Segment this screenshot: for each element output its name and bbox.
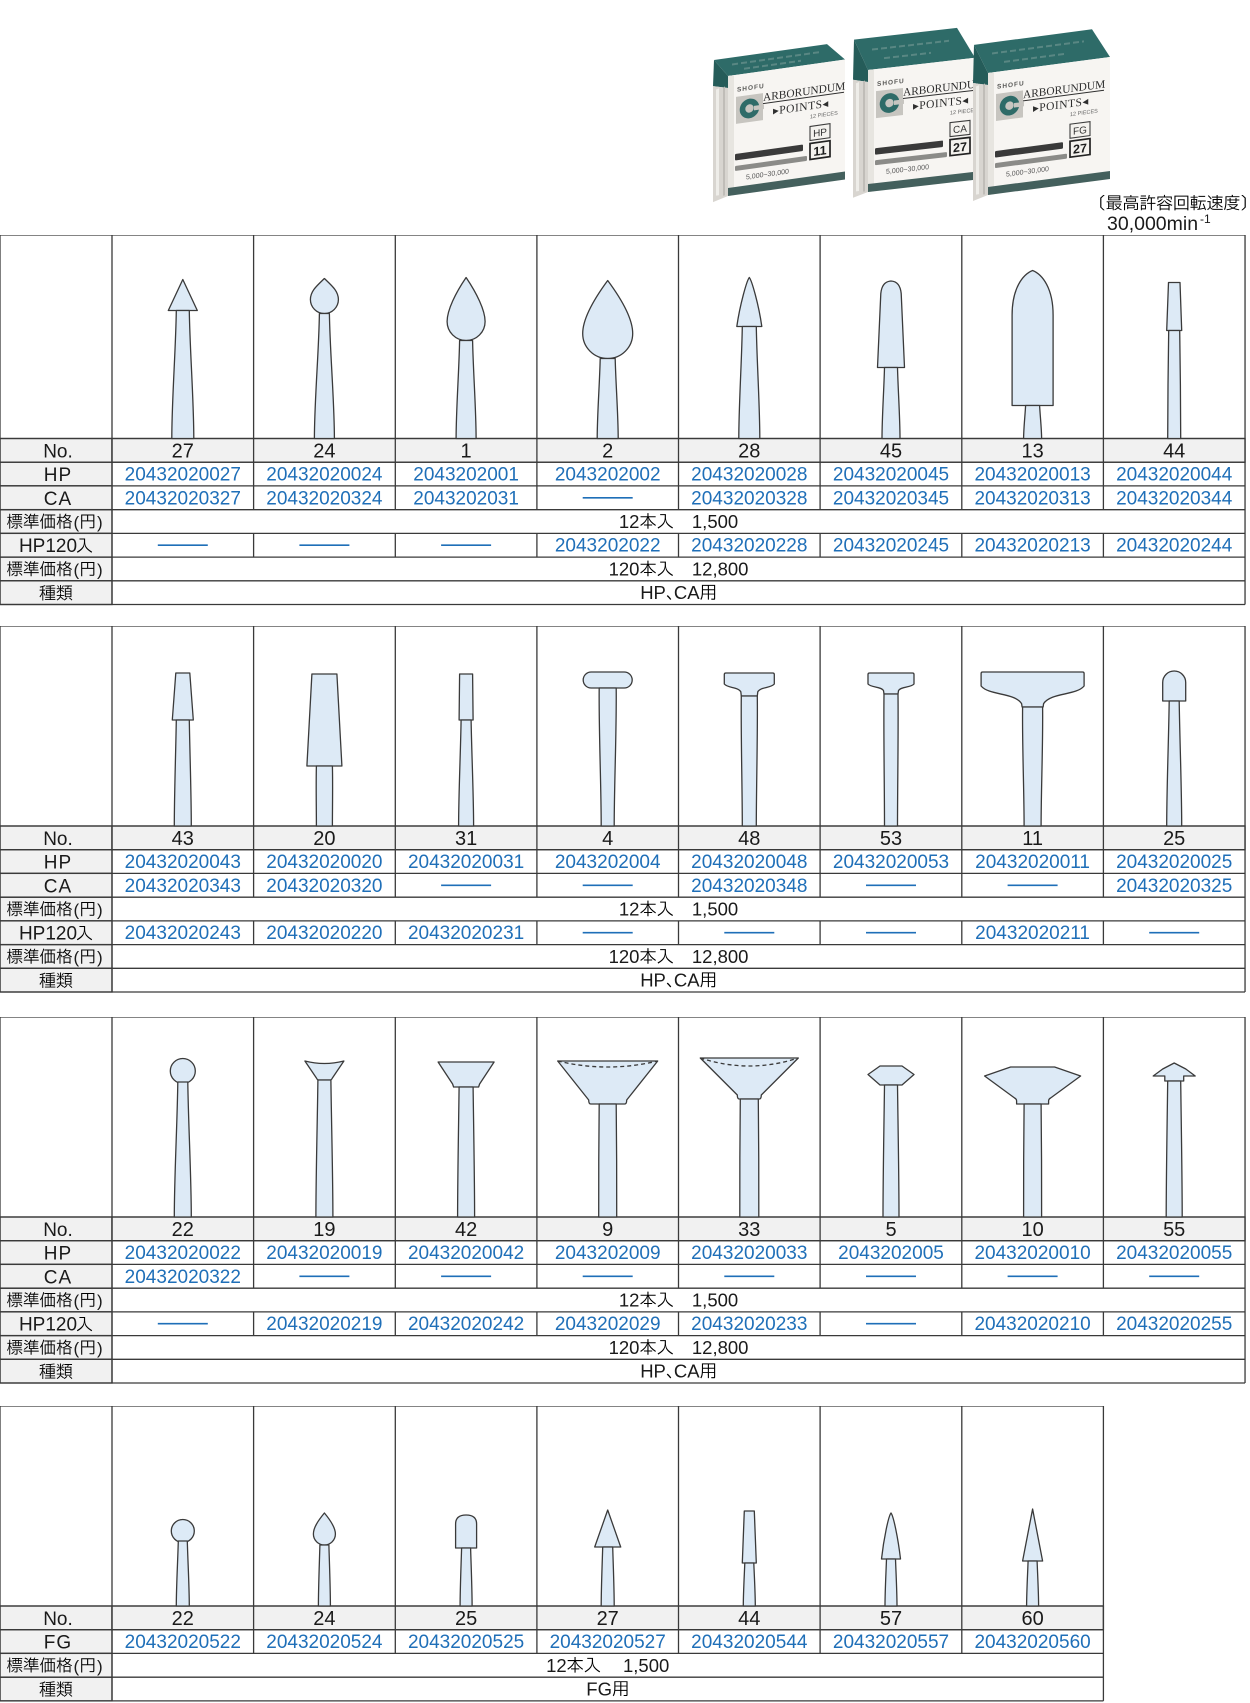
- svg-text:HP: HP: [813, 127, 827, 140]
- svg-text:HP: HP: [44, 1244, 72, 1265]
- svg-text:20432020213: 20432020213: [974, 535, 1090, 556]
- svg-text:20432020327: 20432020327: [125, 488, 241, 509]
- svg-text:20432020028: 20432020028: [691, 464, 807, 485]
- svg-text:20432020325: 20432020325: [1116, 876, 1232, 897]
- svg-text:20432020055: 20432020055: [1116, 1243, 1232, 1264]
- svg-text:20432020024: 20432020024: [266, 464, 383, 485]
- svg-text:57: 57: [880, 1608, 902, 1630]
- svg-text:20432020020: 20432020020: [266, 852, 382, 873]
- svg-text:No.: No.: [43, 1220, 73, 1241]
- svg-text:HP: HP: [640, 1361, 666, 1382]
- svg-text:20432020345: 20432020345: [833, 488, 949, 509]
- svg-text:1,500: 1,500: [623, 1655, 669, 1676]
- svg-text:CA: CA: [44, 1267, 72, 1288]
- svg-text:20432020010: 20432020010: [974, 1243, 1090, 1264]
- svg-text:20432020027: 20432020027: [125, 464, 241, 485]
- svg-text:20432020244: 20432020244: [1116, 535, 1233, 556]
- svg-text:20432020220: 20432020220: [266, 923, 382, 944]
- svg-text:1: 1: [461, 440, 472, 462]
- svg-text:20432020044: 20432020044: [1116, 464, 1233, 485]
- svg-text:HP: HP: [640, 582, 666, 603]
- svg-text:CA: CA: [44, 876, 72, 897]
- svg-text:(: (: [74, 1657, 80, 1676]
- svg-text:FG: FG: [44, 1633, 72, 1654]
- svg-text:1,500: 1,500: [692, 899, 738, 920]
- svg-text:20432020042: 20432020042: [408, 1243, 524, 1264]
- svg-text:45: 45: [880, 440, 902, 462]
- svg-text:13: 13: [1021, 440, 1043, 462]
- svg-text:2043202002: 2043202002: [555, 464, 661, 485]
- svg-text:27: 27: [1073, 141, 1087, 157]
- svg-text:12,800: 12,800: [692, 1337, 749, 1358]
- svg-text:12: 12: [619, 899, 640, 920]
- svg-text:24: 24: [313, 1608, 335, 1630]
- svg-text:44: 44: [738, 1608, 760, 1630]
- svg-text:1,500: 1,500: [692, 1290, 738, 1311]
- svg-text:CA: CA: [674, 1361, 700, 1382]
- svg-text:2043202005: 2043202005: [838, 1243, 944, 1264]
- svg-text:): ): [97, 901, 103, 920]
- svg-text:20432020320: 20432020320: [266, 876, 382, 897]
- svg-text:20432020344: 20432020344: [1116, 488, 1233, 509]
- svg-text:42: 42: [455, 1219, 477, 1241]
- svg-text:53: 53: [880, 828, 902, 850]
- svg-text:): ): [97, 1292, 103, 1311]
- svg-text:20432020255: 20432020255: [1116, 1314, 1232, 1335]
- svg-text:27: 27: [953, 140, 967, 156]
- svg-text:25: 25: [1163, 828, 1185, 850]
- svg-text:FG: FG: [1073, 125, 1087, 138]
- svg-text:20432020522: 20432020522: [125, 1632, 241, 1653]
- svg-text:1,500: 1,500: [692, 511, 738, 532]
- svg-text:CA: CA: [44, 488, 72, 509]
- svg-text:22: 22: [172, 1219, 194, 1241]
- svg-text:20432020233: 20432020233: [691, 1314, 807, 1335]
- svg-text:20432020348: 20432020348: [691, 876, 807, 897]
- svg-text:9: 9: [602, 1219, 613, 1241]
- svg-text:HP120: HP120: [19, 924, 77, 945]
- svg-text:48: 48: [738, 828, 760, 850]
- svg-text:): ): [97, 560, 103, 579]
- svg-text:No.: No.: [43, 829, 73, 850]
- svg-text:2043202029: 2043202029: [555, 1314, 661, 1335]
- svg-text:27: 27: [597, 1608, 619, 1630]
- svg-text:(: (: [74, 513, 80, 532]
- svg-text:12: 12: [619, 1290, 640, 1311]
- svg-text:CA: CA: [674, 582, 700, 603]
- svg-text:2043202001: 2043202001: [413, 464, 519, 485]
- svg-text:CA: CA: [674, 970, 700, 991]
- svg-text:20432020043: 20432020043: [125, 852, 241, 873]
- svg-text:120: 120: [609, 558, 640, 579]
- svg-text:HP120: HP120: [19, 1315, 77, 1336]
- svg-text:12: 12: [619, 511, 640, 532]
- svg-text:(: (: [74, 560, 80, 579]
- svg-text:120: 120: [609, 1337, 640, 1358]
- svg-text:2043202009: 2043202009: [555, 1243, 661, 1264]
- svg-text:2043202031: 2043202031: [413, 488, 519, 509]
- svg-text:CA: CA: [953, 124, 967, 137]
- svg-text:): ): [97, 1339, 103, 1358]
- svg-text:10: 10: [1021, 1219, 1043, 1241]
- svg-text:30,000min: 30,000min: [1107, 213, 1198, 235]
- svg-text:20: 20: [313, 828, 335, 850]
- svg-text:20432020343: 20432020343: [125, 876, 241, 897]
- svg-text:-1: -1: [1200, 212, 1211, 226]
- svg-text:20432020324: 20432020324: [266, 488, 383, 509]
- svg-text:20432020313: 20432020313: [974, 488, 1090, 509]
- svg-text:20432020527: 20432020527: [550, 1632, 666, 1653]
- svg-text:11: 11: [1022, 828, 1043, 850]
- svg-text:44: 44: [1163, 440, 1185, 462]
- svg-text:20432020025: 20432020025: [1116, 852, 1232, 873]
- svg-text:20432020048: 20432020048: [691, 852, 807, 873]
- svg-text:No.: No.: [43, 441, 73, 462]
- svg-text:(: (: [74, 1339, 80, 1358]
- svg-text:HP120: HP120: [19, 536, 77, 557]
- svg-text:No.: No.: [43, 1609, 73, 1630]
- svg-text:55: 55: [1163, 1219, 1185, 1241]
- svg-text:): ): [97, 948, 103, 967]
- svg-text:20432020231: 20432020231: [408, 923, 524, 944]
- svg-text:20432020033: 20432020033: [691, 1243, 807, 1264]
- svg-text:4: 4: [602, 828, 613, 850]
- svg-text:12: 12: [546, 1655, 567, 1676]
- svg-text:(: (: [74, 948, 80, 967]
- svg-text:FG: FG: [586, 1679, 612, 1700]
- svg-text:11: 11: [813, 143, 826, 159]
- svg-text:20432020544: 20432020544: [691, 1632, 808, 1653]
- svg-text:20432020525: 20432020525: [408, 1632, 524, 1653]
- svg-text:20432020219: 20432020219: [266, 1314, 382, 1335]
- svg-text:20432020228: 20432020228: [691, 535, 807, 556]
- svg-text:19: 19: [313, 1219, 335, 1241]
- svg-text:HP: HP: [640, 970, 666, 991]
- svg-text:120: 120: [609, 946, 640, 967]
- svg-text:(: (: [74, 1292, 80, 1311]
- svg-text:20432020013: 20432020013: [974, 464, 1090, 485]
- svg-text:20432020524: 20432020524: [266, 1632, 383, 1653]
- svg-text:20432020560: 20432020560: [974, 1632, 1090, 1653]
- svg-text:20432020243: 20432020243: [125, 923, 241, 944]
- svg-text:): ): [97, 1657, 103, 1676]
- svg-text:28: 28: [738, 440, 760, 462]
- svg-text:HP: HP: [44, 853, 72, 874]
- svg-text:12,800: 12,800: [692, 946, 749, 967]
- svg-text:20432020210: 20432020210: [974, 1314, 1090, 1335]
- svg-text:22: 22: [172, 1608, 194, 1630]
- svg-text:20432020011: 20432020011: [975, 852, 1090, 873]
- svg-text:(: (: [74, 901, 80, 920]
- svg-text:20432020019: 20432020019: [266, 1243, 382, 1264]
- svg-text:20432020031: 20432020031: [408, 852, 524, 873]
- svg-text:20432020322: 20432020322: [125, 1267, 241, 1288]
- svg-text:33: 33: [738, 1219, 760, 1241]
- svg-text:20432020053: 20432020053: [833, 852, 949, 873]
- svg-text:2043202022: 2043202022: [555, 535, 661, 556]
- svg-text:43: 43: [172, 828, 194, 850]
- svg-text:12,800: 12,800: [692, 558, 749, 579]
- svg-text:20432020328: 20432020328: [691, 488, 807, 509]
- svg-text:20432020242: 20432020242: [408, 1314, 524, 1335]
- svg-text:20432020045: 20432020045: [833, 464, 949, 485]
- svg-text:20432020245: 20432020245: [833, 535, 949, 556]
- svg-text:20432020022: 20432020022: [125, 1243, 241, 1264]
- svg-text:2043202004: 2043202004: [555, 852, 661, 873]
- svg-text:): ): [97, 513, 103, 532]
- svg-text:5: 5: [885, 1219, 896, 1241]
- svg-text:2: 2: [602, 440, 613, 462]
- svg-text:24: 24: [313, 440, 335, 462]
- svg-text:27: 27: [172, 440, 194, 462]
- svg-text:60: 60: [1021, 1608, 1043, 1630]
- svg-text:20432020557: 20432020557: [833, 1632, 949, 1653]
- svg-text:25: 25: [455, 1608, 477, 1630]
- svg-text:31: 31: [455, 828, 477, 850]
- svg-text:20432020211: 20432020211: [975, 923, 1090, 944]
- svg-text:HP: HP: [44, 465, 72, 486]
